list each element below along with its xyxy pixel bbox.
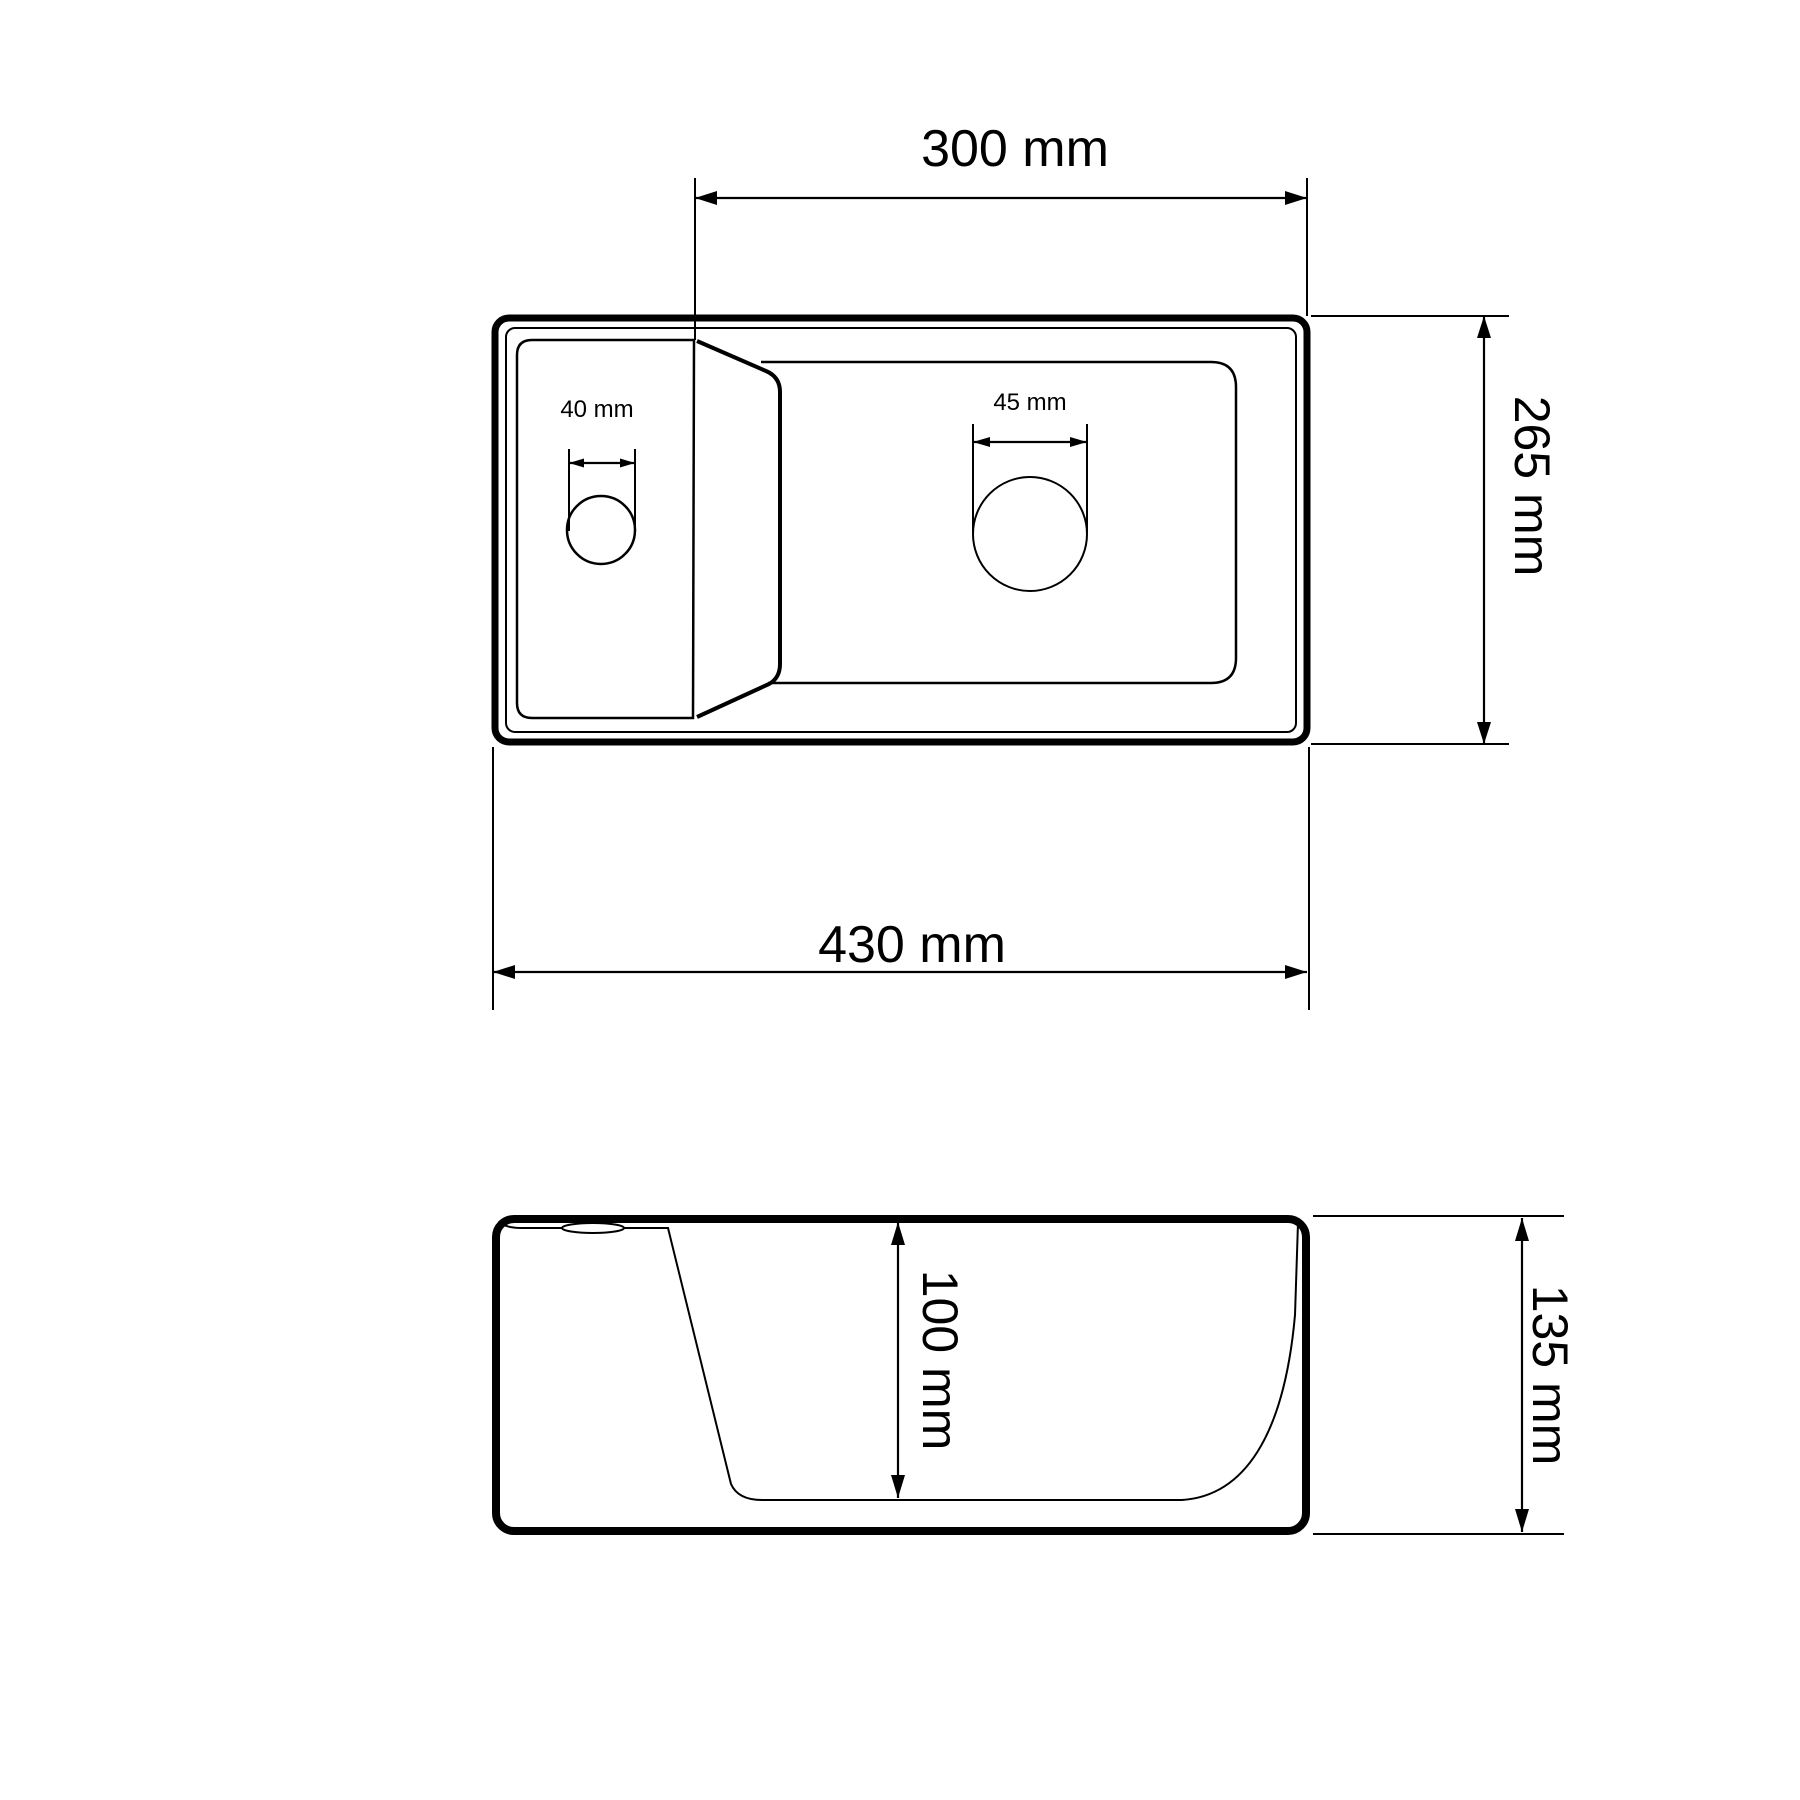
arrowhead-down-icon: [1515, 1509, 1529, 1532]
arrowhead-left-icon: [695, 191, 717, 205]
arrowhead-right-icon: [1285, 191, 1307, 205]
tap-hole: [567, 496, 635, 564]
dimension-265mm-label: 265 mm: [1504, 396, 1560, 577]
dimension-135mm: 135 mm: [1313, 1216, 1578, 1534]
arrowhead-down-icon: [1477, 722, 1491, 744]
dimension-40mm-label: 40 mm: [560, 396, 633, 423]
arrowhead-left-icon: [493, 965, 515, 979]
dimension-430mm-label: 430 mm: [818, 916, 1006, 974]
drawing-svg: 300 mm 265 mm 430 mm 40 mm: [0, 0, 1800, 1800]
dimension-300mm-label: 300 mm: [921, 120, 1109, 178]
dimension-430mm: 430 mm: [493, 747, 1309, 1010]
arrowhead-up-icon: [1477, 316, 1491, 338]
dimension-100mm-label: 100 mm: [912, 1270, 968, 1451]
dimension-265mm: 265 mm: [1311, 316, 1560, 744]
arrowhead-right-icon: [1285, 965, 1307, 979]
dimension-135mm-label: 135 mm: [1522, 1285, 1578, 1466]
drain-hole: [973, 477, 1087, 591]
sink-technical-drawing: 300 mm 265 mm 430 mm 40 mm: [0, 0, 1800, 1800]
dimension-300mm: 300 mm: [695, 120, 1307, 340]
side-view: 100 mm 135 mm: [496, 1216, 1578, 1534]
tap-hole-profile: [562, 1223, 624, 1233]
top-view: 300 mm 265 mm 430 mm 40 mm: [493, 120, 1560, 1010]
dimension-45mm-label: 45 mm: [993, 389, 1066, 416]
arrowhead-up-icon: [1515, 1218, 1529, 1241]
